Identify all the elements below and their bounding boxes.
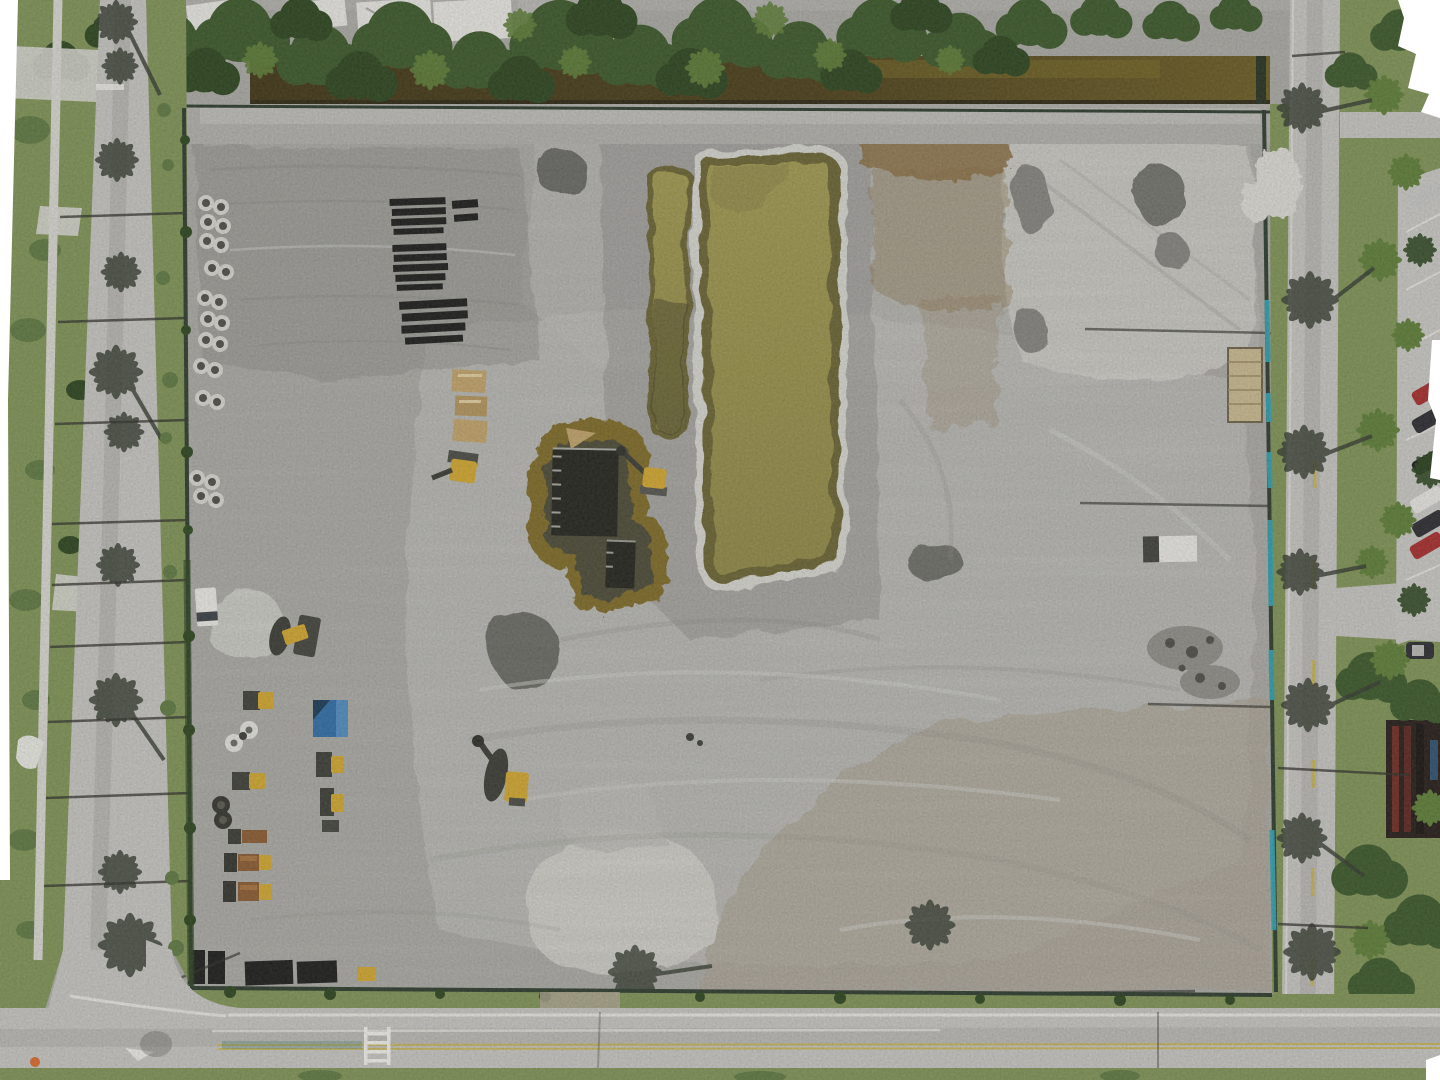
aerial-orthophoto-stage: Aerial drone orthomosaic photo of a grad…	[0, 0, 1440, 1080]
grain-overlay-light	[0, 0, 1440, 1080]
aerial-orthophoto: Aerial drone orthomosaic photo of a grad…	[0, 0, 1440, 1080]
